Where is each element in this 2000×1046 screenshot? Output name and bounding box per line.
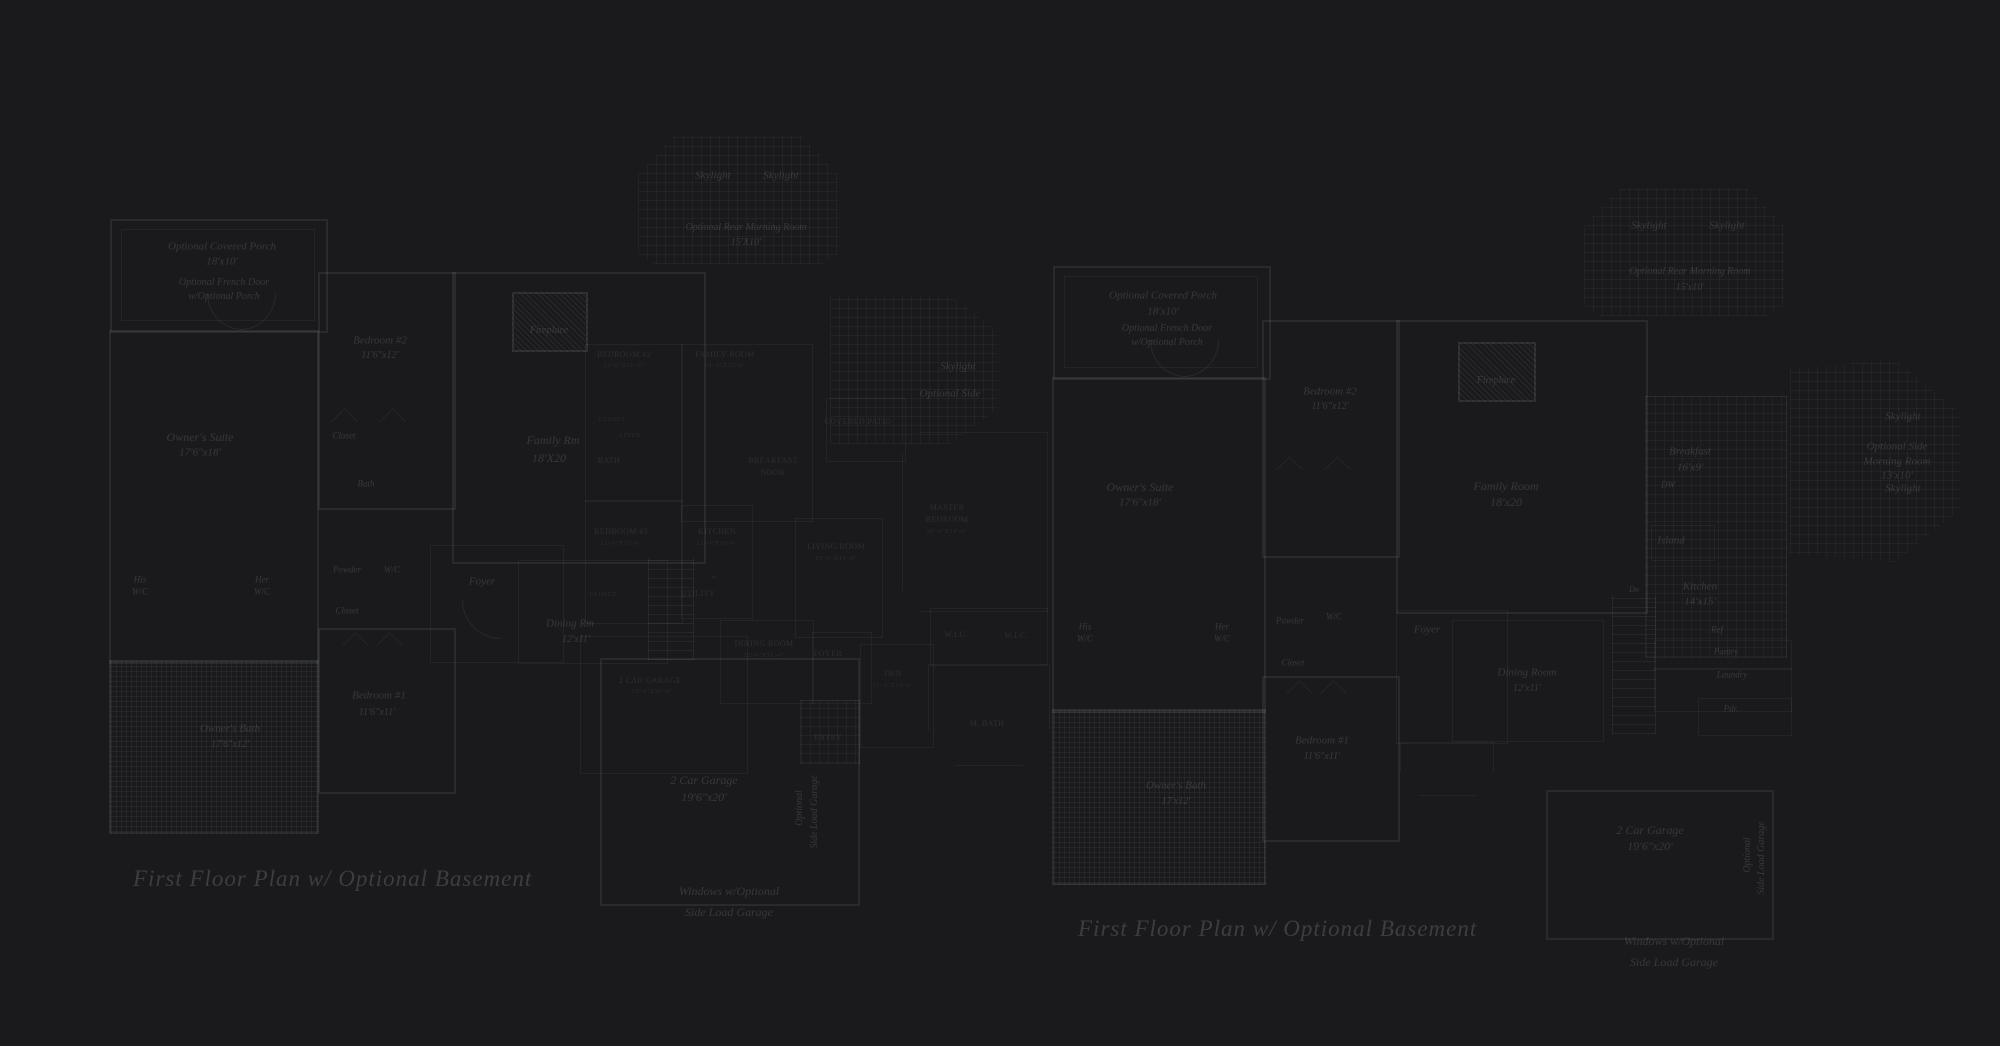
label-caps-kitchen-dim: 12'-0"X10'-0"	[696, 541, 737, 548]
label-dining-room: Dining Room	[1498, 668, 1557, 679]
label-caps-bedroom2: BEDROOM #2	[597, 351, 651, 359]
label-bath: Bath	[358, 480, 375, 489]
label-caps-garage-dim: 19'-4"X20'-0"	[631, 689, 672, 696]
label-skylight-2: Skylight	[763, 171, 798, 182]
label-caps-dining-dim: 12'-0"X11'-0"	[743, 653, 784, 660]
label-rear-morning-dim: 15'X10'	[731, 238, 761, 248]
label-caps-kitchen: KITCHEN	[698, 528, 736, 536]
label-bedroom2: Bedroom #2	[1303, 387, 1357, 398]
label-dining: Dining Rm	[546, 619, 594, 630]
tiled-floor-morning-room	[1584, 188, 1784, 316]
label-caps-closet-2: CLOSET	[590, 592, 617, 599]
label-powder: Powder	[333, 566, 361, 575]
label-foyer: Foyer	[1414, 625, 1440, 636]
label-skylight-1: Skylight	[1631, 221, 1666, 232]
label-optional-french-door-2: w/Optional Porch	[188, 292, 260, 302]
label-ref: Ref	[1711, 626, 1723, 635]
wall-segment-foyer	[1396, 610, 1508, 744]
label-dw: DW	[1661, 481, 1675, 490]
label-garage-dim: 19'6"x20'	[681, 791, 727, 803]
label-caps-bedroom3: BEDROOM #3	[594, 528, 648, 536]
wall-segment	[1052, 377, 1266, 713]
label-caps-covered-patio: COVERED PATIO	[825, 418, 892, 426]
label-windows-2: Side Load Garage	[1630, 956, 1718, 968]
label-owners-bath-dim: 17'6"x12'	[211, 740, 249, 750]
label-fireplace: Fireplace	[530, 326, 569, 336]
label-sideload-1: Optional	[1743, 837, 1753, 873]
label-garage-dim: 19'6"x20'	[1627, 840, 1673, 852]
label-caps-foyer: FOYER	[814, 650, 842, 658]
label-powder: Powder	[1276, 617, 1304, 626]
label-side-skylight-2: Skylight	[1885, 484, 1920, 495]
label-caps-entry: ENTRY	[814, 734, 842, 742]
label-dining-dim: 12'x11'	[562, 635, 590, 645]
label-caps-closet-1: CLOSET	[599, 417, 626, 424]
label-porch-dim: 18'x10'	[206, 257, 238, 268]
label-sideload-2: Side Load Garage	[810, 775, 820, 848]
label-family-room-dim: 18'x20	[1490, 496, 1522, 508]
label-caps-wic-2: W.I.C.	[1004, 632, 1027, 640]
label-caps-wic-1: W.I.C.	[944, 631, 967, 639]
label-family-rm-dim: 18'X20	[532, 452, 566, 464]
caption-left-plan: First Floor Plan w/ Optional Basement	[133, 866, 532, 892]
wall-segment	[585, 500, 683, 624]
label-his-wc-2: W/C	[1077, 635, 1093, 644]
label-windows-1: Windows w/Optional	[679, 885, 779, 897]
tiled-floor-entry	[800, 700, 860, 764]
label-pantry: Pantry	[1714, 648, 1739, 657]
label-optional-french-door: Optional French Door	[1122, 324, 1212, 334]
label-kitchen: Kitchen	[1683, 582, 1717, 593]
label-rear-morning-room: Optional Rear Morning Room	[686, 223, 807, 233]
wall-segment-garage	[1546, 790, 1774, 940]
label-caps-linen: LINEN	[619, 433, 641, 440]
label-caps-garage: 2 CAR GARAGE	[619, 677, 682, 685]
label-caps-bath: BATH	[598, 457, 621, 465]
label-family-rm: Family Rm	[527, 434, 580, 446]
wall-segment-mbath-bay	[928, 664, 1050, 766]
label-caps-living: LIVING ROOM	[807, 543, 865, 551]
label-caps-breakfast: BREAKFAST	[748, 457, 798, 465]
label-breakfast-dim: 16'x9'	[1677, 463, 1703, 474]
label-owners-suite: Owner's Suite	[1107, 481, 1174, 493]
label-bedroom1: Bedroom #1	[352, 691, 406, 702]
stair-hatch	[1612, 596, 1656, 734]
label-bedroom2-dim: 11'6"x12'	[361, 351, 398, 361]
label-his-wc-2: W/C	[132, 588, 148, 597]
caption-right-plan: First Floor Plan w/ Optional Basement	[1078, 916, 1477, 942]
label-windows-1: Windows w/Optional	[1624, 935, 1724, 947]
label-owners-bath: Owner's Bath	[1146, 781, 1206, 792]
label-caps-master-2: BEDROOM	[926, 516, 969, 524]
label-owners-bath: Owner's Bath	[200, 724, 260, 735]
label-foyer: Foyer	[469, 577, 495, 588]
label-kitchen-dim: 14'x15'	[1684, 597, 1716, 608]
floor-plan-canvas: Optional Covered Porch 18'x10' Optional …	[0, 0, 2000, 1046]
label-laundry: Laundry	[1717, 671, 1748, 680]
label-caps-dining: DINING ROOM	[735, 640, 794, 648]
label-dining-room-dim: 12'x11'	[1513, 684, 1541, 694]
label-caps-bedroom2-dim: 12'-0"X11'-6"	[603, 363, 644, 370]
label-rear-morning-dim: 15'x10'	[1676, 283, 1705, 293]
label-island: Island	[1657, 536, 1685, 547]
label-side-morning-1: Optional Side	[1867, 442, 1928, 453]
label-her-wc-2: W/C	[254, 588, 270, 597]
label-caps-master-1: MASTER	[930, 504, 965, 512]
wall-segment	[318, 272, 456, 510]
wall-segment-patio	[826, 398, 906, 462]
wall-segment-entry-bay	[1400, 742, 1494, 796]
label-skylight-1: Skylight	[695, 171, 730, 182]
label-rear-morning-room: Optional Rear Morning Room	[1630, 267, 1751, 277]
label-caps-washer: W	[711, 575, 718, 582]
label-sideload-1: Optional	[795, 790, 805, 826]
label-owners-suite-dim: 17'6"x18'	[179, 448, 221, 459]
label-optional-covered-porch: Optional Covered Porch	[1109, 291, 1217, 302]
label-owners-suite: Owner's Suite	[167, 431, 234, 443]
label-bedroom1-dim: 11'6"x11'	[1304, 752, 1340, 762]
label-caps-bedroom3-dim: 12'-0"X11'-0"	[600, 541, 641, 548]
label-windows-2: Side Load Garage	[685, 906, 773, 918]
wall-segment-pdr	[1698, 698, 1792, 736]
label-caps-master-dim: 16'-0"X14'-0"	[926, 529, 967, 536]
wall-segment	[1262, 320, 1400, 558]
label-optional-side: Optional Side	[920, 389, 981, 400]
label-skylight-3: Skylight	[940, 362, 975, 373]
label-garage: 2 Car Garage	[670, 774, 737, 786]
label-his-wc: His	[134, 576, 147, 585]
label-dn: Dn	[1629, 586, 1639, 594]
label-bedroom1: Bedroom #1	[1295, 736, 1349, 747]
label-caps-utility: UTILITY	[681, 590, 715, 598]
label-bedroom2: Bedroom #2	[353, 336, 407, 347]
label-his-wc: His	[1079, 623, 1092, 632]
label-closet-lower: Closet	[335, 607, 358, 616]
label-her-wc: Her	[1215, 623, 1229, 632]
label-caps-family-dim: 19'-0"X15'-8"	[704, 363, 745, 370]
label-fireplace: Fireplace	[1477, 376, 1516, 386]
label-caps-mbath: M. BATH	[970, 720, 1005, 728]
label-closet-lower: Closet	[1281, 659, 1304, 668]
label-caps-living-dim: 15'-0"X13'-0"	[815, 556, 856, 563]
label-her-wc: Her	[255, 576, 269, 585]
label-caps-nook: NOOK	[761, 469, 786, 477]
label-optional-french-door-2: w/Optional Porch	[1131, 338, 1203, 348]
label-side-skylight-1: Skylight	[1885, 412, 1920, 423]
label-garage: 2 Car Garage	[1616, 824, 1683, 836]
wall-segment	[109, 330, 319, 664]
label-caps-den-dim: 11'-0"X10'-0"	[872, 683, 913, 690]
label-bedroom1-dim: 11'6"x11'	[359, 708, 395, 718]
label-wc: W/C	[384, 566, 400, 575]
label-owners-suite-dim: 17'6"x18'	[1119, 498, 1161, 509]
label-sideload-2: Side Load Garage	[1757, 821, 1767, 894]
label-breakfast: Breakfast	[1669, 447, 1711, 458]
wall-segment	[681, 505, 753, 619]
label-bedroom2-dim: 11'6"x12'	[1311, 402, 1348, 412]
label-caps-den: DEN	[884, 670, 902, 678]
label-closet: Closet	[332, 432, 355, 441]
tiled-floor-owners-bath	[1052, 709, 1266, 885]
label-pdr: Pdr.	[1724, 705, 1739, 714]
label-skylight-2: Skylight	[1709, 221, 1744, 232]
label-owners-bath-dim: 17'x12'	[1162, 797, 1191, 807]
label-porch-dim: 18'x10'	[1147, 307, 1179, 318]
fireplace-hatch	[512, 292, 588, 352]
label-her-wc-2: W/C	[1214, 635, 1230, 644]
label-optional-covered-porch: Optional Covered Porch	[168, 242, 276, 253]
wall-segment	[580, 636, 748, 774]
wall-segment-master-bedroom	[902, 432, 1048, 612]
label-side-morning-2: Morning Room	[1864, 457, 1931, 468]
label-caps-family-room: FAMILY ROOM	[695, 351, 754, 359]
label-family-room: Family Room	[1474, 480, 1539, 492]
label-optional-french-door: Optional French Door	[179, 278, 269, 288]
wall-segment	[860, 644, 934, 748]
fireplace-hatch	[1458, 342, 1536, 402]
wall-segment	[681, 344, 813, 522]
label-side-morning-dim: 13'x10'	[1881, 471, 1913, 482]
label-wc: W/C	[1326, 613, 1342, 622]
